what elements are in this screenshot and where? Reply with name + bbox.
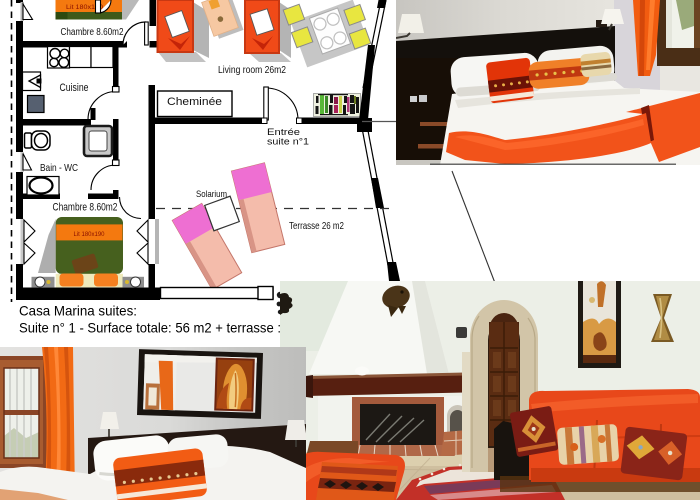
svg-text:Living room 26m2: Living room 26m2 xyxy=(218,64,286,76)
svg-text:Terrasse 26 m2: Terrasse 26 m2 xyxy=(289,220,344,232)
svg-text:suite n°1: suite n°1 xyxy=(267,137,309,148)
svg-text:Suite n° 1 - Surface totale: 5: Suite n° 1 - Surface totale: 56 m2 + ter… xyxy=(19,320,281,336)
svg-text:Chambre 8.60m2: Chambre 8.60m2 xyxy=(53,202,118,214)
svg-text:Cuisine: Cuisine xyxy=(60,82,89,94)
svg-text:Cheminée: Cheminée xyxy=(167,96,222,108)
svg-text:Chambre 8.60m2: Chambre 8.60m2 xyxy=(61,27,124,38)
svg-text:Casa Marina suites:: Casa Marina suites: xyxy=(19,303,137,319)
svg-text:Bain - WC: Bain - WC xyxy=(40,162,78,174)
svg-text:Lit 180x190: Lit 180x190 xyxy=(74,231,105,238)
